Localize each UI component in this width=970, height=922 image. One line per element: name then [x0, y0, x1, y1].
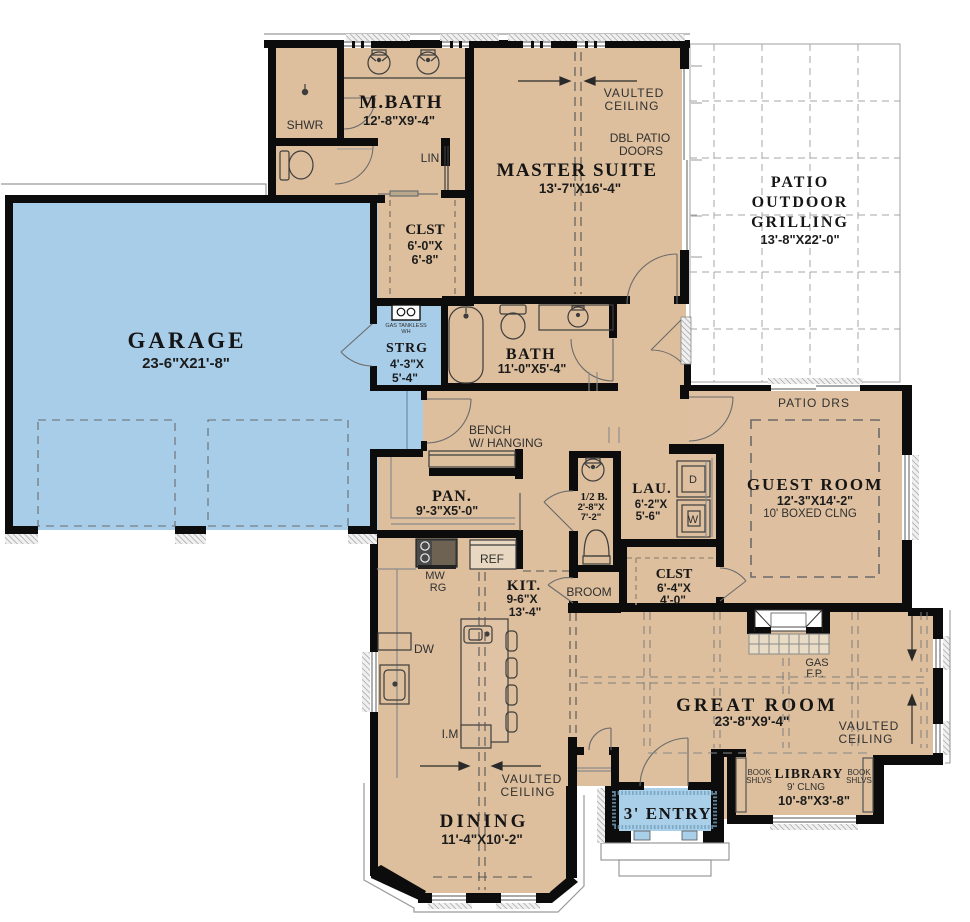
svg-text:STRG: STRG — [386, 341, 428, 356]
svg-text:CEILING: CEILING — [838, 732, 893, 746]
svg-text:CLST: CLST — [405, 222, 444, 238]
svg-text:5'-6": 5'-6" — [636, 511, 661, 523]
svg-text:12'-3"X14'-2": 12'-3"X14'-2" — [777, 494, 853, 508]
svg-text:13'-8"X22'-0": 13'-8"X22'-0" — [760, 232, 839, 247]
svg-text:7'-2": 7'-2" — [581, 512, 602, 523]
svg-text:PATIO: PATIO — [771, 174, 829, 191]
svg-text:REF: REF — [480, 552, 504, 566]
svg-text:10'-8"X3'-8": 10'-8"X3'-8" — [778, 793, 850, 808]
svg-text:LIBRARY: LIBRARY — [775, 766, 844, 781]
svg-text:DW: DW — [414, 642, 435, 656]
svg-text:6'-0"X: 6'-0"X — [407, 239, 443, 253]
svg-text:13'-4": 13'-4" — [509, 605, 542, 619]
svg-text:DINING: DINING — [440, 811, 529, 832]
svg-text:GUEST ROOM: GUEST ROOM — [747, 475, 883, 494]
svg-text:MW: MW — [425, 570, 445, 582]
svg-text:GARAGE: GARAGE — [128, 328, 247, 353]
svg-text:SHLVS: SHLVS — [846, 776, 872, 785]
svg-text:13'-7"X16'-4": 13'-7"X16'-4" — [539, 181, 621, 196]
svg-text:10' BOXED CLNG: 10' BOXED CLNG — [763, 508, 857, 520]
svg-text:W: W — [688, 514, 699, 526]
svg-text:SHLVS: SHLVS — [746, 776, 772, 785]
svg-text:W/ HANGING: W/ HANGING — [469, 436, 543, 450]
svg-text:LAU.: LAU. — [632, 481, 671, 497]
svg-text:VAULTED: VAULTED — [839, 719, 900, 733]
svg-text:D: D — [689, 474, 697, 486]
svg-text:4'-3"X: 4'-3"X — [390, 357, 424, 371]
svg-text:DOORS: DOORS — [619, 144, 663, 158]
svg-text:9-6"X: 9-6"X — [506, 592, 537, 606]
svg-text:GRILLING: GRILLING — [751, 214, 849, 231]
svg-text:MASTER SUITE: MASTER SUITE — [496, 160, 657, 181]
svg-text:BATH: BATH — [506, 346, 556, 363]
svg-text:9'-3"X5'-0": 9'-3"X5'-0" — [416, 504, 478, 518]
svg-text:GREAT ROOM: GREAT ROOM — [676, 695, 838, 716]
svg-text:RG: RG — [430, 582, 447, 594]
svg-text:WH: WH — [401, 329, 410, 335]
svg-text:12'-8"X9'-4": 12'-8"X9'-4" — [363, 113, 435, 128]
svg-text:VAULTED: VAULTED — [502, 772, 563, 786]
svg-text:CEILING: CEILING — [500, 785, 555, 799]
svg-text:CEILING: CEILING — [604, 99, 659, 113]
svg-text:23'-8"X9'-4": 23'-8"X9'-4" — [715, 714, 790, 729]
svg-text:CLST: CLST — [656, 567, 693, 582]
svg-text:I.M: I.M — [442, 727, 459, 741]
svg-text:6'-2"X: 6'-2"X — [635, 499, 668, 511]
svg-text:VAULTED: VAULTED — [604, 86, 665, 100]
svg-text:6'-8": 6'-8" — [412, 253, 439, 267]
svg-text:DBL PATIO: DBL PATIO — [610, 131, 670, 145]
svg-text:3' ENTRY: 3' ENTRY — [624, 804, 712, 823]
svg-text:PATIO DRS: PATIO DRS — [778, 396, 850, 410]
svg-text:5'-4": 5'-4" — [392, 371, 418, 385]
svg-text:LIN: LIN — [421, 151, 440, 165]
svg-text:SHWR: SHWR — [287, 118, 324, 132]
svg-text:PAN.: PAN. — [432, 488, 472, 505]
svg-text:F.P.: F.P. — [806, 668, 824, 680]
svg-text:BENCH: BENCH — [469, 423, 511, 437]
svg-text:OUTDOOR: OUTDOOR — [752, 194, 849, 211]
svg-text:BROOM: BROOM — [566, 585, 611, 599]
svg-text:11'-4"X10'-2": 11'-4"X10'-2" — [441, 832, 523, 847]
svg-text:M.BATH: M.BATH — [359, 92, 443, 113]
svg-text:23-6"X21'-8": 23-6"X21'-8" — [142, 355, 230, 372]
svg-text:4'-0": 4'-0" — [660, 593, 686, 607]
svg-text:9' CLNG: 9' CLNG — [787, 782, 825, 793]
svg-text:11'-0"X5'-4": 11'-0"X5'-4" — [498, 362, 567, 376]
